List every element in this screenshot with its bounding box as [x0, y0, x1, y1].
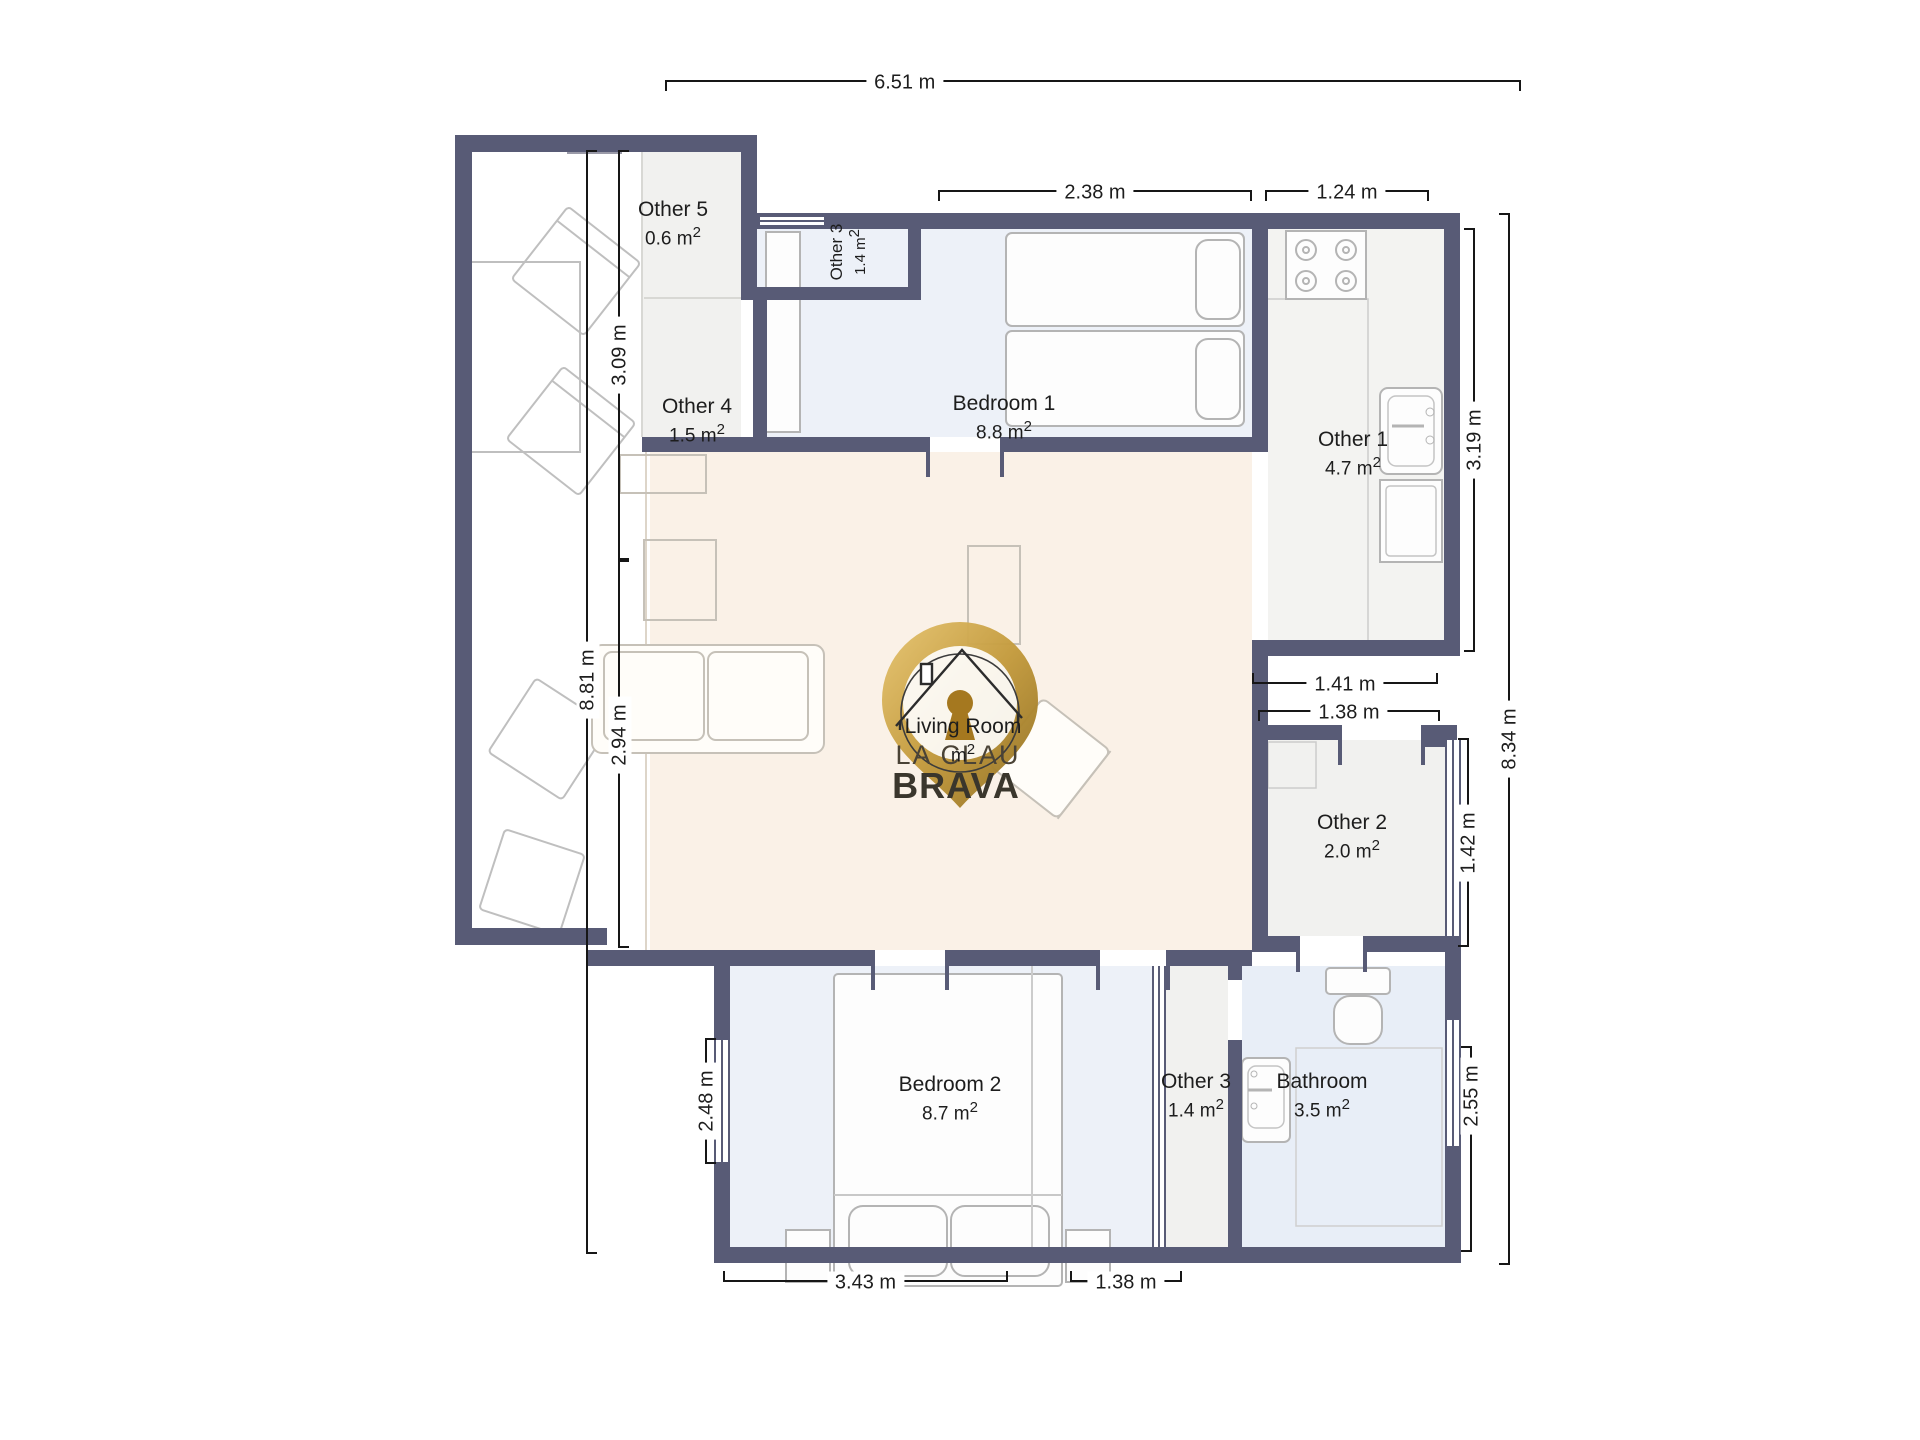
room-area: 0.6 m2 [638, 222, 708, 250]
room-name: Other 3 [827, 224, 846, 281]
dimension-terrace-upper: 3.09 m [618, 152, 620, 558]
terrace-furniture [468, 153, 641, 935]
dimension-label: 1.38 m [1310, 702, 1387, 725]
dimension-label: 2.94 m [609, 696, 632, 773]
wall-building-bottom [714, 1247, 1461, 1263]
dimension-label: 1.24 m [1308, 182, 1385, 205]
wall-living-bottom-b [945, 950, 1100, 966]
dimension-bathroom-bottom: 1.38 m [1070, 1280, 1182, 1282]
room-label-other4: Other 4 1.5 m2 [662, 395, 732, 447]
table-icon [644, 540, 716, 620]
terrace-chair-icon [479, 829, 585, 935]
fridge-icon [1380, 480, 1442, 562]
wall-other3b-bath-stub [1228, 966, 1242, 980]
door-tick [1421, 725, 1425, 765]
stove-icon [1286, 231, 1366, 299]
room-name: Living Room [905, 715, 1022, 739]
room-label-other5: Other 5 0.6 m2 [638, 198, 708, 250]
wall-terrace-left [455, 135, 472, 945]
room-area: 1.4 m2 [846, 224, 869, 281]
dimension-label: 1.42 m [1458, 804, 1481, 881]
dimension-right-total: 8.34 m [1508, 215, 1510, 1263]
wall-kitchen-right [1444, 213, 1460, 656]
floor-plan: 6.51 m 2.38 m 1.24 m 3.09 m 8.81 m 2.94 … [0, 0, 1920, 1440]
room-label-other1: Other 1 4.7 m2 [1318, 428, 1388, 480]
dimension-label: 8.81 m [577, 641, 600, 718]
dimension-left-total: 8.81 m [586, 152, 588, 1252]
wall-living-bottom-c [1170, 950, 1252, 966]
wall-other2-left [1252, 725, 1268, 952]
wall-kitchen-bottom [1252, 640, 1460, 656]
dimension-living-left: 2.94 m [618, 562, 620, 946]
dimension-kitchen-top: 1.24 m [1265, 190, 1429, 192]
room-name: Other 4 [662, 395, 732, 419]
pillow-icon [1196, 240, 1240, 319]
door-tick [1166, 950, 1170, 990]
dimension-label: 3.43 m [827, 1272, 904, 1295]
dimension-bathroom-right: 2.55 m [1470, 1048, 1472, 1250]
washer-icon [1268, 742, 1316, 788]
dimension-label: 2.55 m [1461, 1058, 1484, 1135]
dimension-label: 1.38 m [1087, 1272, 1164, 1295]
room-area: 3.5 m2 [1276, 1094, 1367, 1122]
window-bathroom [1445, 1020, 1461, 1146]
door-tick [1096, 950, 1100, 990]
room-label-other3-bottom: Other 3 1.4 m2 [1161, 1070, 1231, 1122]
room-area: m2 [905, 739, 1022, 767]
dimension-other2-right: 1.42 m [1467, 740, 1469, 945]
room-area: 2.0 m2 [1317, 835, 1387, 863]
wall-bedroom1-kitchen [1252, 213, 1268, 452]
dimension-label: 3.19 m [1464, 401, 1487, 478]
door-tick [1296, 936, 1300, 972]
dimension-hall-upper: 1.41 m [1252, 682, 1438, 684]
room-label-bedroom1: Bedroom 1 8.8 m2 [953, 392, 1056, 444]
dimension-label: 3.09 m [609, 316, 632, 393]
room-name: Other 2 [1317, 811, 1387, 835]
room-area: 8.8 m2 [953, 416, 1056, 444]
room-name: Other 5 [638, 198, 708, 222]
room-area: 4.7 m2 [1318, 452, 1388, 480]
room-area: 1.5 m2 [662, 419, 732, 447]
pillow-icon [951, 1206, 1049, 1276]
dimension-kitchen-right: 3.19 m [1473, 230, 1475, 650]
room-area: 1.4 m2 [1161, 1094, 1231, 1122]
dimension-bedroom1-top: 2.38 m [938, 190, 1252, 192]
dimension-bedroom2-bottom: 3.43 m [723, 1280, 1008, 1282]
room-label-bathroom: Bathroom 3.5 m2 [1276, 1070, 1367, 1122]
room-label-bedroom2: Bedroom 2 8.7 m2 [899, 1073, 1002, 1125]
room-label-other3-top: Other 3 1.4 m2 [827, 224, 869, 281]
logo-text-line2: BRAVA [892, 765, 1020, 806]
wall-toproom-right [908, 229, 921, 300]
room-area: 8.7 m2 [899, 1097, 1002, 1125]
wardrobe-icon [766, 232, 800, 432]
dimension-hall-lower: 1.38 m [1258, 710, 1440, 712]
dimension-label: 1.41 m [1306, 674, 1383, 697]
room-label-other2: Other 2 2.0 m2 [1317, 811, 1387, 863]
room-name: Bedroom 1 [953, 392, 1056, 416]
room-name: Bathroom [1276, 1070, 1367, 1094]
room-name: Other 1 [1318, 428, 1388, 452]
pillow-icon [849, 1206, 947, 1276]
room-name: Bedroom 2 [899, 1073, 1002, 1097]
dimension-bedroom2-left: 2.48 m [705, 1040, 707, 1162]
wall-terrace-bottom [455, 928, 607, 945]
tv-unit-icon [620, 455, 706, 493]
room-label-living: Living Room m2 [905, 715, 1022, 767]
bedroom2-furniture [786, 966, 1110, 1286]
door-tick [926, 437, 930, 477]
wall-other2-bottom-a [1252, 936, 1300, 952]
toilet-icon [1326, 968, 1390, 994]
wall-toproom-bottom [741, 287, 921, 300]
wall-living-bottom-a [588, 950, 875, 966]
dimension-top-width: 6.51 m [665, 80, 1521, 82]
wall-other2-bottom-b [1363, 936, 1461, 952]
dimension-label: 2.48 m [696, 1062, 719, 1139]
door-tick [945, 950, 949, 990]
door-tick [871, 950, 875, 990]
pillow-icon [1196, 339, 1240, 419]
door-tick [1338, 725, 1342, 765]
dimension-label: 6.51 m [866, 72, 943, 95]
window-toproom [760, 215, 824, 227]
room-name: Other 3 [1161, 1070, 1231, 1094]
dimension-label: 8.34 m [1499, 700, 1522, 777]
door-tick [1363, 936, 1367, 972]
wall-other4-right [753, 287, 767, 452]
wall-terrace-top [455, 135, 757, 152]
dimension-label: 2.38 m [1056, 182, 1133, 205]
